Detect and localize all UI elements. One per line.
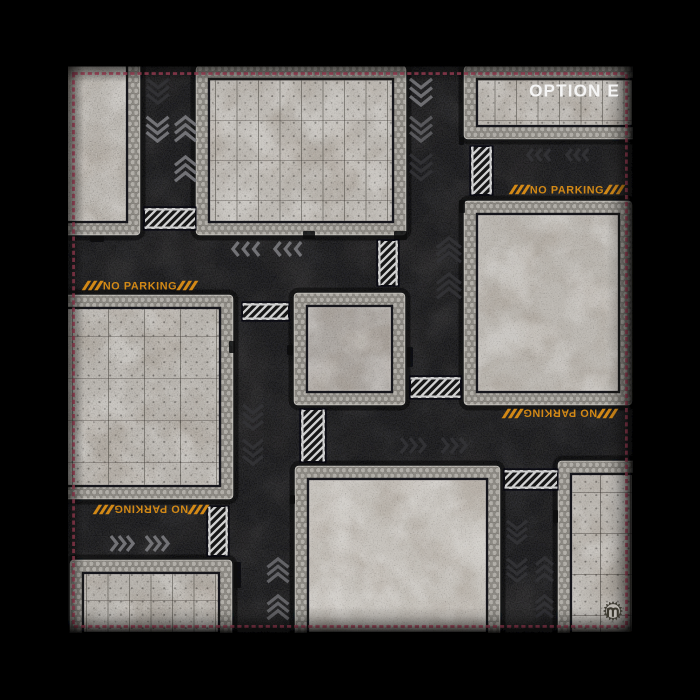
svg-text:OPTION E: OPTION E — [529, 81, 620, 101]
svg-text:NO PARKING: NO PARKING — [114, 502, 188, 514]
svg-text:NO PARKING: NO PARKING — [530, 185, 604, 197]
svg-text:NO PARKING: NO PARKING — [523, 406, 597, 418]
svg-text:NO PARKING: NO PARKING — [103, 281, 177, 293]
